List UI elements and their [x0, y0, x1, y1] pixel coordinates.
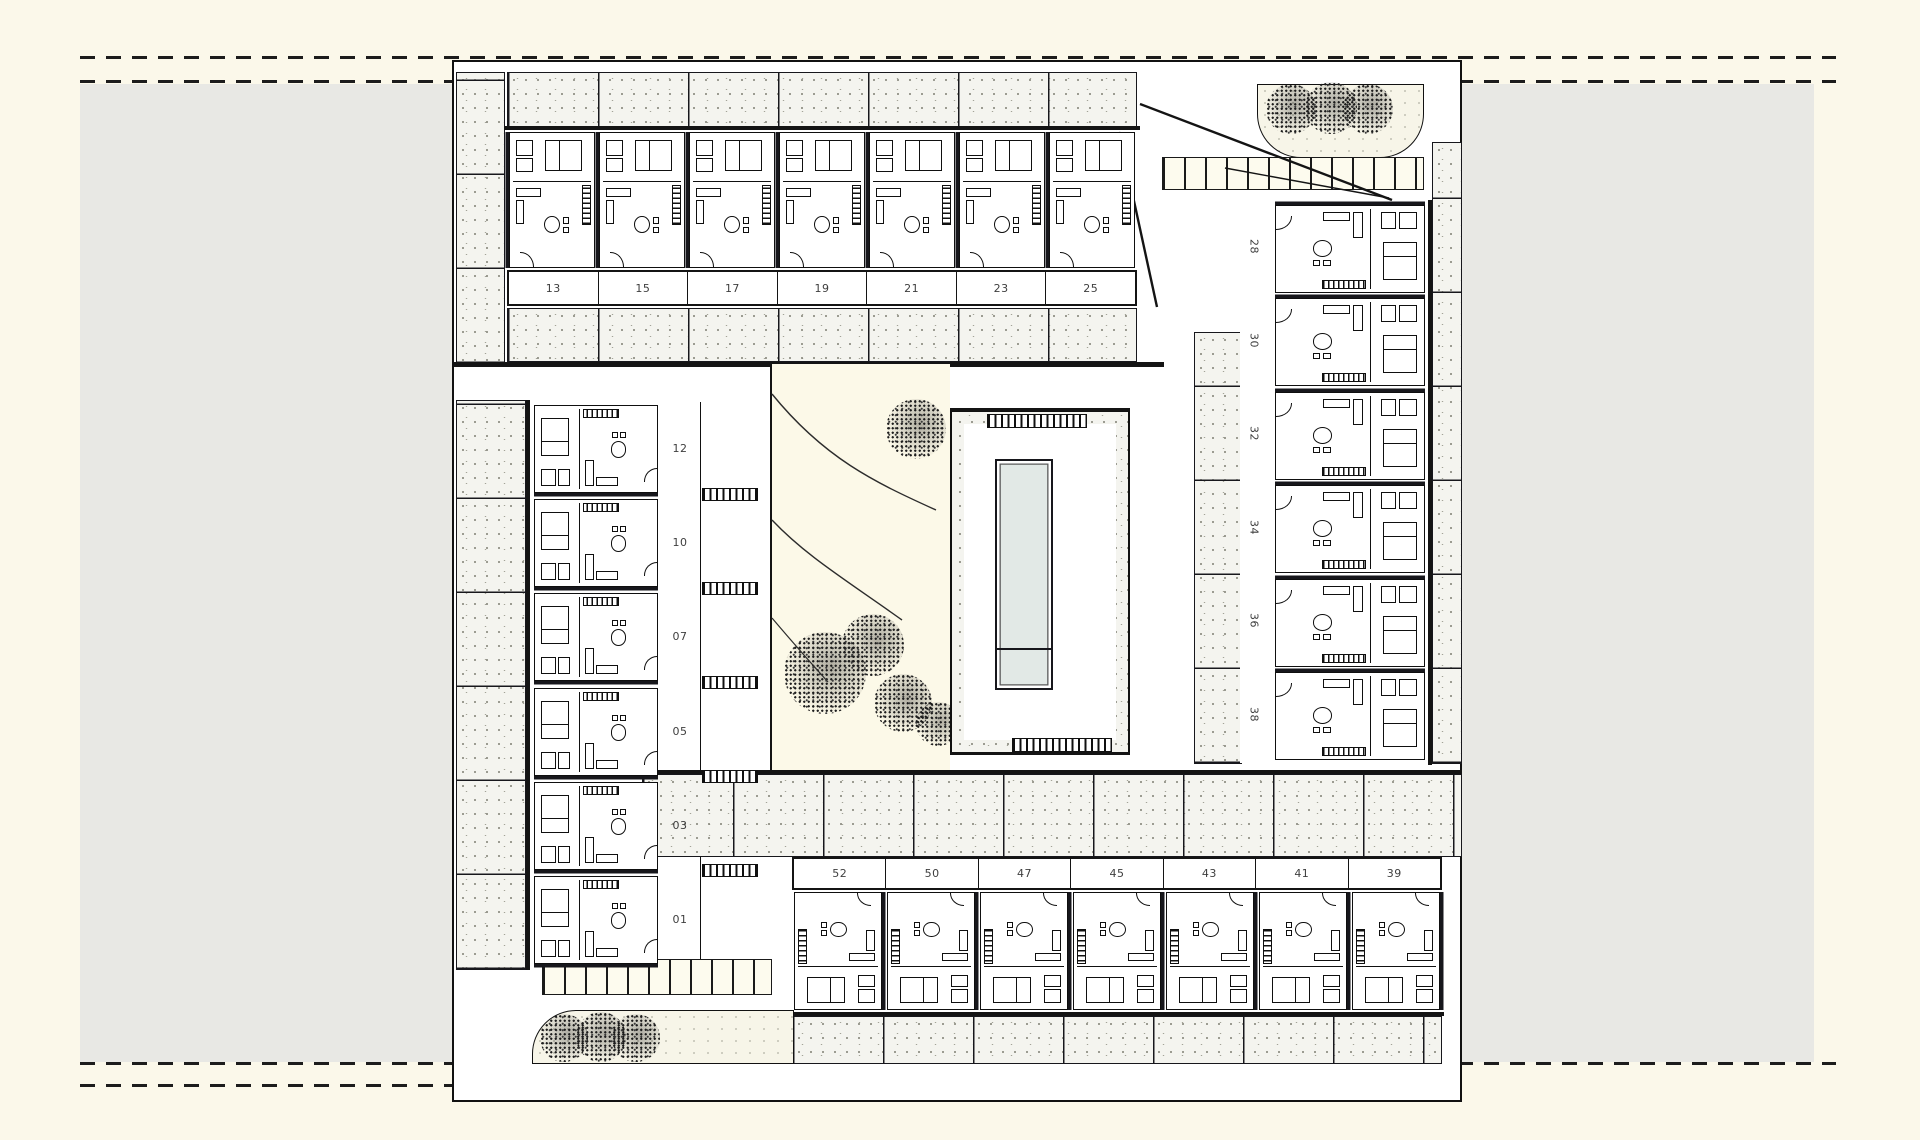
- unit-slot: [532, 873, 660, 967]
- unit-plan: [1049, 132, 1135, 268]
- unit-slot: [777, 130, 867, 270]
- tree-icon: [842, 614, 904, 676]
- patio-strip-top-rear: [507, 308, 1137, 362]
- door-arc-icon: [610, 252, 623, 267]
- unit-number-label: 25: [1045, 272, 1135, 304]
- stairs-icon: [583, 597, 620, 606]
- pool-grate-south: [1012, 738, 1112, 752]
- paving-right-inner-strip: [1194, 332, 1242, 764]
- door-arc-icon: [1136, 893, 1150, 906]
- stair-stub: [702, 582, 758, 595]
- tree-icon: [886, 399, 946, 459]
- table-icon: [1017, 922, 1033, 937]
- table-icon: [1313, 240, 1332, 256]
- stairs-icon: [1077, 929, 1086, 964]
- wall-left-row: [526, 400, 530, 970]
- unit-slot: [532, 402, 660, 496]
- unit-number-label: 43: [1163, 859, 1255, 888]
- stairs-icon: [891, 929, 900, 964]
- unit-slot: [1164, 890, 1257, 1012]
- stairs-icon: [1170, 929, 1179, 964]
- unit-slot: [1272, 296, 1428, 390]
- unit-number-label: 05: [660, 725, 700, 738]
- unit-plan: [779, 132, 865, 268]
- unit-plan: [689, 132, 775, 268]
- unit-number-label: 03: [660, 819, 700, 832]
- unit-slot: [1272, 670, 1428, 764]
- unit-slot: [507, 130, 597, 270]
- door-arc-icon: [644, 468, 657, 482]
- door-arc-icon: [644, 751, 657, 765]
- unit-number-label: 13: [509, 272, 598, 304]
- stairs-icon: [1322, 467, 1366, 476]
- stair-stub: [702, 676, 758, 689]
- stairs-icon: [942, 185, 951, 225]
- unit-plan: [534, 688, 658, 776]
- table-icon: [1313, 708, 1332, 724]
- patio-strip-middle: [642, 774, 1462, 857]
- door-arc-icon: [1276, 403, 1292, 417]
- table-icon: [1295, 922, 1311, 937]
- unit-number-label: 21: [866, 272, 956, 304]
- unit-number-label: 32: [1248, 416, 1261, 452]
- unit-plan: [534, 876, 658, 964]
- table-icon: [831, 922, 847, 937]
- stairs-icon: [583, 691, 620, 700]
- table-icon: [1109, 922, 1125, 937]
- unit-number-label: 47: [978, 859, 1070, 888]
- unit-plan: [1275, 392, 1425, 480]
- stairs-icon: [672, 185, 681, 225]
- unit-slot: [597, 130, 687, 270]
- door-arc-icon: [700, 252, 713, 267]
- unit-plan: [887, 892, 975, 1010]
- door-arc-icon: [1229, 893, 1243, 906]
- table-icon: [724, 216, 740, 233]
- door-arc-icon: [1043, 893, 1057, 906]
- unit-slot: [885, 890, 978, 1012]
- unit-slot: [978, 890, 1071, 1012]
- unit-plan: [1352, 892, 1440, 1010]
- stairs-icon: [1032, 185, 1041, 225]
- unit-plan: [534, 499, 658, 587]
- door-arc-icon: [644, 656, 657, 670]
- tree-icon: [1343, 84, 1393, 134]
- stairs-icon: [1322, 654, 1366, 663]
- unit-plan: [534, 593, 658, 681]
- stairs-icon: [1322, 560, 1366, 569]
- stairs-icon: [583, 785, 620, 794]
- unit-plan: [1275, 205, 1425, 293]
- door-arc-icon: [520, 252, 533, 267]
- stair-stub: [702, 864, 758, 877]
- unit-number-label: 07: [660, 630, 700, 643]
- stairs-icon: [1322, 747, 1366, 756]
- unit-plan: [959, 132, 1045, 268]
- door-arc-icon: [1060, 252, 1073, 267]
- table-icon: [1313, 334, 1332, 350]
- paving-right-strip: [1432, 142, 1462, 764]
- door-arc-icon: [1415, 893, 1429, 906]
- unit-slot: [1272, 202, 1428, 296]
- unit-slot: [532, 496, 660, 590]
- unit-number-label: 23: [956, 272, 1046, 304]
- unit-slot: [957, 130, 1047, 270]
- unit-plan: [980, 892, 1068, 1010]
- door-arc-icon: [1322, 893, 1336, 906]
- patio-strip-top: [507, 72, 1137, 128]
- table-icon: [994, 216, 1010, 233]
- tree-icon: [612, 1014, 660, 1062]
- stairs-icon: [582, 185, 591, 225]
- corridor-right: [1240, 202, 1272, 763]
- unit-slot: [1272, 389, 1428, 483]
- unit-number-label: 39: [1348, 859, 1440, 888]
- unit-number-label: 36: [1248, 603, 1261, 639]
- table-icon: [1084, 216, 1100, 233]
- stairs-icon: [1263, 929, 1272, 964]
- unit-number-label: 34: [1248, 509, 1261, 545]
- door-arc-icon: [880, 252, 893, 267]
- unit-plan: [1275, 485, 1425, 573]
- pool: [995, 459, 1053, 690]
- door-arc-icon: [970, 252, 983, 267]
- stair-stub: [702, 488, 758, 501]
- unit-plan: [1275, 579, 1425, 667]
- unit-plan: [1259, 892, 1347, 1010]
- door-arc-icon: [1276, 310, 1292, 324]
- stairs-icon: [852, 185, 861, 225]
- table-icon: [544, 216, 560, 233]
- unit-plan: [1275, 298, 1425, 386]
- neighbour-parcel-left: [80, 84, 452, 1062]
- stairs-icon: [762, 185, 771, 225]
- door-arc-icon: [1276, 497, 1292, 511]
- wall-deck-south: [950, 752, 1130, 755]
- unit-slot: [1349, 890, 1442, 1012]
- unit-number-label: 28: [1248, 229, 1261, 265]
- table-icon: [1313, 614, 1332, 630]
- unit-number-label: 30: [1248, 322, 1261, 358]
- label-lane-left: [660, 402, 700, 967]
- unit-slot: [1071, 890, 1164, 1012]
- wall-deck-north: [950, 408, 1130, 411]
- table-icon: [611, 441, 627, 457]
- unit-slot: [867, 130, 957, 270]
- unit-slot: [1272, 576, 1428, 670]
- table-icon: [1313, 521, 1332, 537]
- door-arc-icon: [1276, 216, 1292, 230]
- stairs-icon: [1122, 185, 1131, 225]
- table-icon: [611, 724, 627, 740]
- door-arc-icon: [950, 893, 964, 906]
- unit-number-label: 17: [687, 272, 777, 304]
- stairs-icon: [1355, 929, 1364, 964]
- unit-plan: [1166, 892, 1254, 1010]
- unit-slot: [1047, 130, 1137, 270]
- boundary-dash-top-1: [80, 56, 1836, 59]
- bottom-row-labels: 52504745434139: [792, 857, 1442, 890]
- stair-stub: [702, 770, 758, 783]
- neighbour-parcel-right: [1438, 84, 1814, 1062]
- site-plan-canvas: 13151719212325: [0, 0, 1920, 1140]
- table-icon: [634, 216, 650, 233]
- door-arc-icon: [644, 562, 657, 576]
- unit-slot: [792, 890, 885, 1012]
- table-icon: [1388, 922, 1404, 937]
- unit-number-label: 41: [1255, 859, 1347, 888]
- parking-strip-top-right: [1162, 157, 1424, 190]
- table-icon: [611, 630, 627, 646]
- door-arc-icon: [857, 893, 871, 906]
- pool-grate-north: [987, 414, 1087, 428]
- door-arc-icon: [644, 939, 657, 953]
- door-arc-icon: [1276, 590, 1292, 604]
- stairs-icon: [1322, 373, 1366, 382]
- unit-slot: [532, 590, 660, 684]
- table-icon: [611, 912, 627, 928]
- stairs-icon: [984, 929, 993, 964]
- unit-slot: [532, 685, 660, 779]
- unit-slot: [532, 779, 660, 873]
- table-icon: [924, 922, 940, 937]
- unit-slot: [687, 130, 777, 270]
- table-icon: [1313, 427, 1332, 443]
- table-icon: [1202, 922, 1218, 937]
- stairs-icon: [798, 929, 807, 964]
- unit-plan: [534, 782, 658, 870]
- unit-number-label: 52: [794, 859, 885, 888]
- door-arc-icon: [1276, 684, 1292, 698]
- unit-plan: [794, 892, 882, 1010]
- stairs-icon: [1322, 280, 1366, 289]
- door-arc-icon: [790, 252, 803, 267]
- unit-number-label: 38: [1248, 696, 1261, 732]
- unit-number-label: 45: [1070, 859, 1162, 888]
- patio-strip-bottom: [792, 1016, 1442, 1064]
- unit-number-label: 50: [885, 859, 977, 888]
- unit-plan: [509, 132, 595, 268]
- table-icon: [814, 216, 830, 233]
- unit-number-label: 10: [660, 536, 700, 549]
- stairs-icon: [583, 880, 620, 889]
- unit-number-label: 15: [598, 272, 688, 304]
- unit-plan: [599, 132, 685, 268]
- unit-plan: [1073, 892, 1161, 1010]
- paving-top-left-strip: [456, 72, 505, 364]
- table-icon: [904, 216, 920, 233]
- door-arc-icon: [644, 845, 657, 859]
- top-row-labels: 13151719212325: [507, 270, 1137, 306]
- plan-sheet: 13151719212325: [452, 60, 1462, 1102]
- unit-number-label: 12: [660, 442, 700, 455]
- unit-plan: [1275, 672, 1425, 760]
- table-icon: [611, 536, 627, 552]
- unit-number-label: 19: [777, 272, 867, 304]
- table-icon: [611, 818, 627, 834]
- unit-plan: [534, 405, 658, 493]
- unit-plan: [869, 132, 955, 268]
- stairs-icon: [583, 409, 620, 418]
- stairs-icon: [583, 503, 620, 512]
- unit-slot: [1257, 890, 1350, 1012]
- wall-right-row: [1428, 200, 1432, 765]
- unit-number-label: 01: [660, 913, 700, 926]
- unit-slot: [1272, 483, 1428, 577]
- wall-garden-west: [770, 364, 772, 772]
- patio-strip-left: [456, 400, 526, 970]
